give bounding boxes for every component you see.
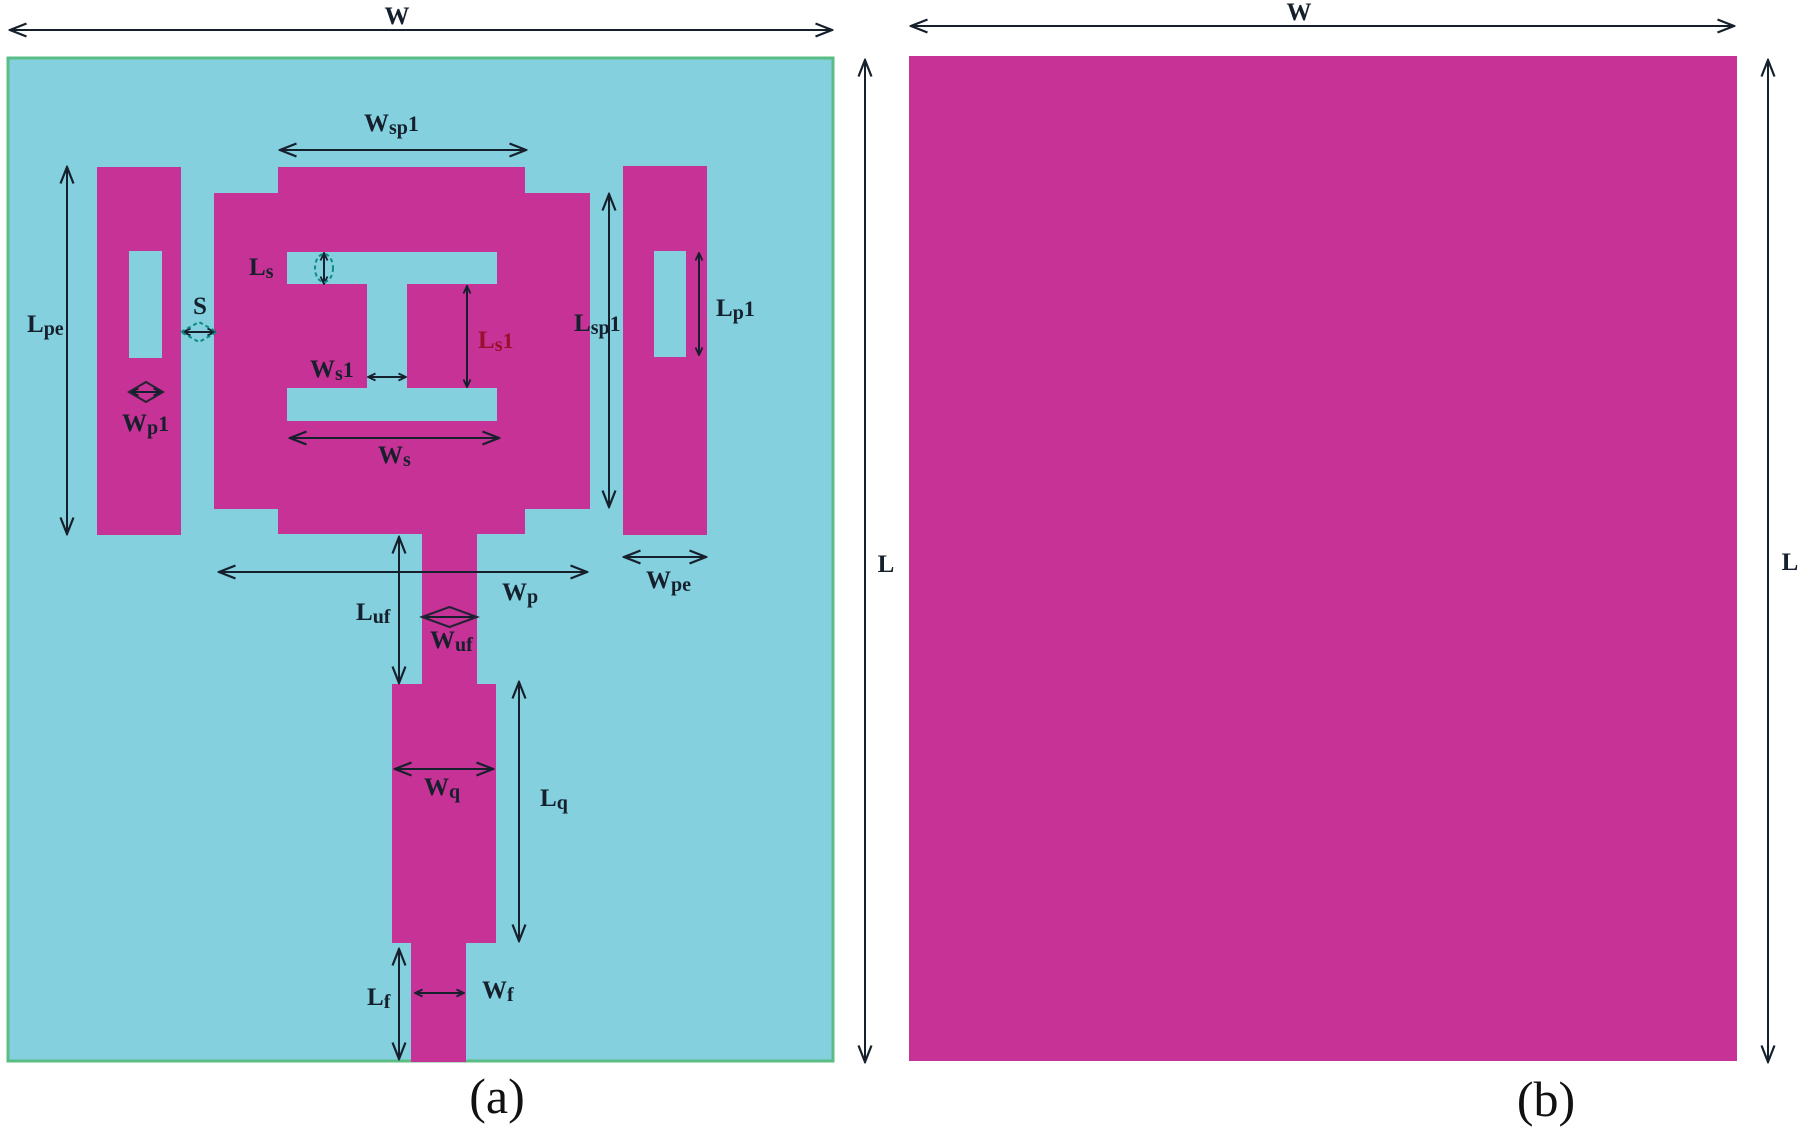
- svg-text:W: W: [385, 3, 410, 30]
- svg-text:(a): (a): [469, 1068, 525, 1124]
- svg-text:(b): (b): [1517, 1071, 1575, 1127]
- svg-text:W: W: [1287, 0, 1312, 26]
- svg-text:Ws1: Ws1: [310, 356, 354, 385]
- svg-text:L: L: [878, 551, 895, 578]
- svg-text:Wp1: Wp1: [122, 410, 169, 439]
- svg-text:S: S: [193, 293, 207, 320]
- svg-text:L: L: [1782, 549, 1799, 576]
